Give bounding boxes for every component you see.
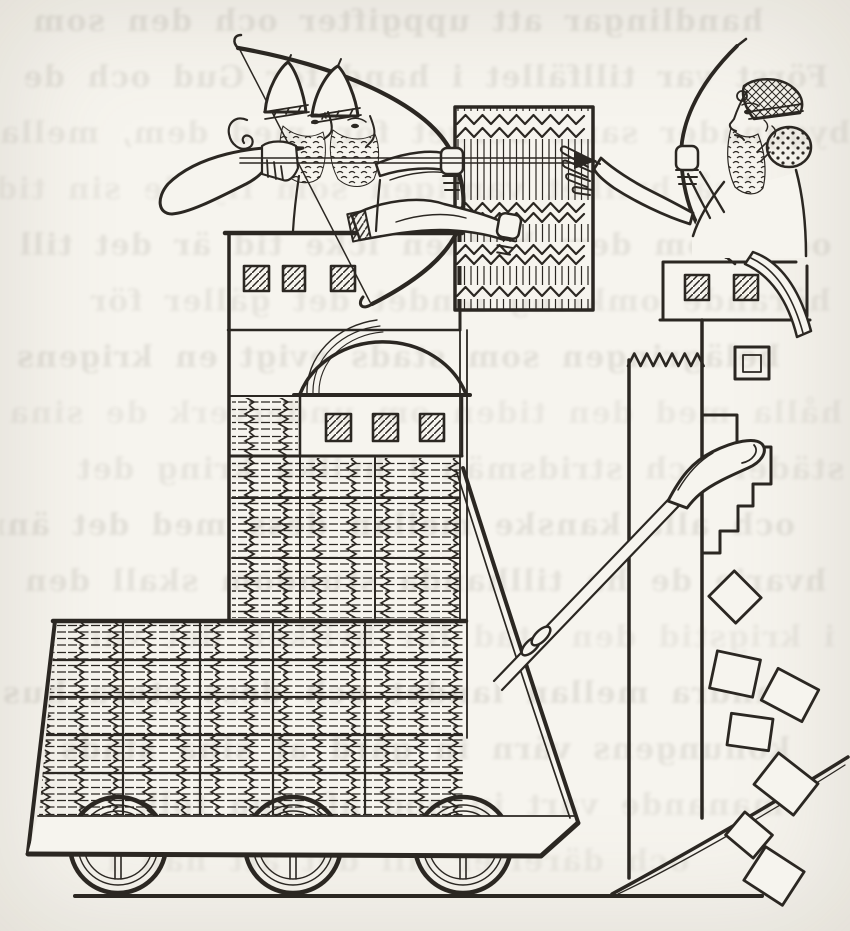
city-wall (612, 262, 848, 905)
siege-engine (28, 35, 764, 896)
wall-zigzag-coping (628, 354, 704, 367)
hull-skirt (28, 816, 578, 856)
falling-blocks (709, 571, 819, 905)
rubble-ramp (612, 757, 848, 894)
dome-tower-window (326, 414, 351, 441)
dome-tower-window (373, 414, 398, 441)
dome-tower-window (420, 414, 444, 441)
rear-archer-hand (262, 142, 298, 181)
turret-window (283, 266, 305, 291)
defender-beard (728, 128, 765, 194)
scanned-book-page: handlingar att uppgifter och den som För… (0, 0, 850, 931)
defender-turban-lappet (767, 127, 811, 167)
turret-window (244, 266, 269, 291)
parapet-window (734, 275, 758, 300)
ear-curl (229, 118, 253, 148)
turret-window (331, 266, 355, 291)
archer-helmet (312, 66, 358, 116)
siege-engine-engraving (0, 0, 850, 931)
bow-grip-fist (441, 148, 463, 190)
wall-window (735, 347, 769, 379)
parapet-window (685, 275, 709, 300)
wicker-screen (455, 107, 593, 310)
archer-helmet (265, 62, 306, 112)
engine-prow-arc (456, 468, 578, 822)
ram-head (668, 441, 764, 508)
